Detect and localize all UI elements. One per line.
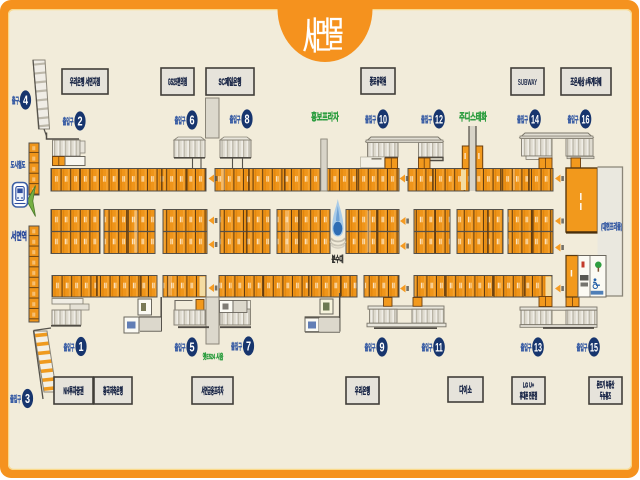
svg-text:주디스태화: 주디스태화 bbox=[459, 111, 487, 123]
svg-text:15: 15 bbox=[590, 342, 598, 355]
svg-text:출입구: 출입구 bbox=[175, 115, 186, 127]
svg-text:SC제일은행: SC제일은행 bbox=[219, 76, 242, 87]
svg-text:흥국저축은행: 흥국저축은행 bbox=[103, 385, 123, 397]
svg-text:11: 11 bbox=[435, 342, 443, 355]
svg-text:5: 5 bbox=[189, 341, 194, 355]
svg-text:9: 9 bbox=[379, 341, 384, 355]
svg-text:출입구: 출입구 bbox=[577, 342, 588, 354]
svg-text:출입구: 출입구 bbox=[10, 393, 21, 405]
svg-text:우리은행 서면지점: 우리은행 서면지점 bbox=[70, 76, 100, 88]
svg-text:홍보프라자: 홍보프라자 bbox=[311, 111, 339, 123]
svg-text:출입구: 출입구 bbox=[231, 341, 242, 353]
svg-text:NH투자증권: NH투자증권 bbox=[63, 385, 83, 397]
svg-text:출입구: 출입구 bbox=[175, 342, 186, 354]
svg-text:16: 16 bbox=[582, 114, 590, 127]
svg-text:13: 13 bbox=[534, 342, 542, 355]
svg-text:출입구: 출입구 bbox=[517, 114, 528, 126]
svg-text:다이소: 다이소 bbox=[459, 384, 472, 395]
svg-text:출입구: 출입구 bbox=[230, 114, 241, 126]
svg-text:출입구: 출입구 bbox=[63, 116, 74, 128]
svg-text:(대현프리몰): (대현프리몰) bbox=[601, 221, 622, 232]
svg-text:2: 2 bbox=[77, 115, 82, 129]
svg-text:3: 3 bbox=[25, 392, 30, 406]
svg-text:우리은행: 우리은행 bbox=[355, 385, 370, 397]
svg-text:조은세상 #투게더웨: 조은세상 #투게더웨 bbox=[571, 76, 602, 88]
svg-text:1: 1 bbox=[78, 340, 83, 354]
svg-text:7: 7 bbox=[246, 340, 251, 354]
svg-text:출입구: 출입구 bbox=[421, 114, 432, 126]
svg-text:종로유학원: 종로유학원 bbox=[370, 75, 387, 87]
svg-text:8: 8 bbox=[244, 113, 249, 127]
svg-text:출입구: 출입구 bbox=[64, 342, 75, 354]
svg-text:출입구: 출입구 bbox=[568, 114, 579, 126]
svg-text:출구-: 출구- bbox=[12, 95, 21, 107]
svg-text:도시철도: 도시철도 bbox=[11, 159, 26, 170]
svg-text:6: 6 bbox=[189, 114, 194, 128]
svg-text:출입구: 출입구 bbox=[365, 342, 376, 354]
svg-text:출입구: 출입구 bbox=[521, 342, 532, 354]
svg-text:출입구: 출입구 bbox=[422, 342, 433, 354]
svg-text:14: 14 bbox=[531, 114, 539, 127]
svg-text:서면역: 서면역 bbox=[11, 230, 27, 242]
svg-text:4: 4 bbox=[23, 94, 29, 108]
svg-text:10: 10 bbox=[379, 114, 387, 127]
svg-text:서면금융프라자: 서면금융프라자 bbox=[202, 385, 224, 397]
svg-text:GS25편의점: GS25편의점 bbox=[168, 76, 187, 88]
svg-text:SUBWAY: SUBWAY bbox=[518, 79, 537, 88]
svg-text:12: 12 bbox=[435, 114, 443, 127]
svg-text:LG U+: LG U+ bbox=[523, 382, 535, 390]
svg-text:분수대: 분수대 bbox=[332, 253, 344, 264]
svg-text:출입구: 출입구 bbox=[365, 114, 376, 126]
